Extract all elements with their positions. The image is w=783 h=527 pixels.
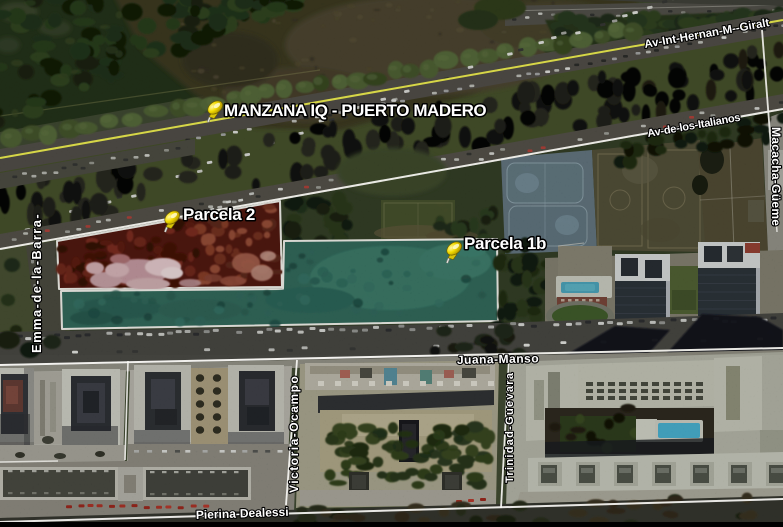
svg-text:Juana-Manso: Juana-Manso (457, 351, 539, 367)
svg-text:MANZANA IQ - PUERTO MADERO: MANZANA IQ - PUERTO MADERO (224, 101, 486, 120)
svg-text:Parcela 2: Parcela 2 (183, 205, 255, 224)
svg-text:Emma-de-la-Barra-: Emma-de-la-Barra- (29, 213, 44, 353)
svg-text:Macacha-Güeme: Macacha-Güeme (769, 127, 783, 226)
svg-text:Victoria-Ocampo: Victoria-Ocampo (287, 375, 301, 493)
svg-text:Trinidad-Guevara: Trinidad-Guevara (504, 372, 516, 483)
svg-text:Parcela 1b: Parcela 1b (464, 234, 546, 253)
